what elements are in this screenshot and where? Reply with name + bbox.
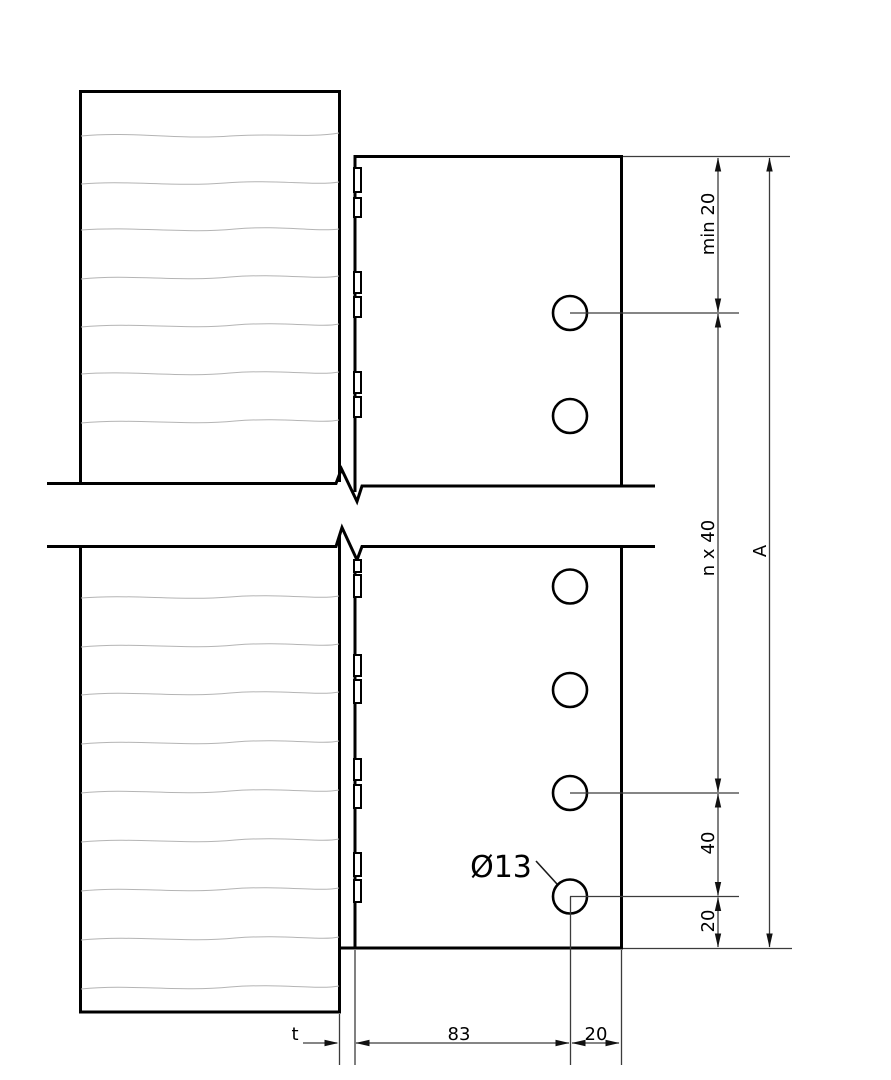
- steel-plate-bottom: [338, 546, 623, 950]
- dim-label-n-x-40: n x 40: [698, 520, 719, 576]
- dim-label-20-right: 20: [698, 910, 719, 933]
- dimension-83: 83: [356, 1024, 570, 1046]
- dim-label-40: 40: [698, 832, 719, 855]
- dim-label-20-bottom: 20: [585, 1024, 608, 1045]
- technical-drawing-canvas: min 20 n x 40 40 20 A t 83: [0, 0, 891, 1080]
- dim-label-min-20: min 20: [698, 193, 719, 256]
- break-line-top: [47, 469, 655, 502]
- timber-grain-lines: [81, 133, 339, 423]
- dim-label-83: 83: [448, 1024, 471, 1045]
- dimension-n-x-40: n x 40: [698, 314, 721, 793]
- leader-line: [536, 861, 557, 884]
- bolt-hole: [553, 399, 587, 433]
- hole-diameter-callout: Ø13: [470, 850, 557, 885]
- dimension-20-bottom: 20: [572, 1024, 620, 1046]
- timber-member-bottom: [79, 535, 341, 1014]
- hole-diameter-label: Ø13: [470, 850, 532, 885]
- dim-label-A: A: [750, 544, 771, 557]
- steel-plate-top: [354, 155, 624, 492]
- dim-label-t: t: [291, 1024, 298, 1045]
- bolt-hole: [553, 673, 587, 707]
- connection-detail-drawing: min 20 n x 40 40 20 A t 83: [0, 0, 891, 1080]
- plate-slot-marks-top: [354, 168, 361, 417]
- timber-member-top: [79, 90, 341, 484]
- break-line-bottom: [47, 528, 655, 561]
- timber-grain-lines: [81, 596, 339, 989]
- dimension-t: t: [291, 1024, 338, 1046]
- dimension-A-total: A: [750, 158, 773, 948]
- extension-lines: [340, 157, 793, 1066]
- dimension-40: 40: [698, 794, 721, 897]
- bolt-hole: [553, 570, 587, 604]
- dimension-min-20: min 20: [698, 158, 721, 313]
- dimension-20-right: 20: [698, 897, 721, 948]
